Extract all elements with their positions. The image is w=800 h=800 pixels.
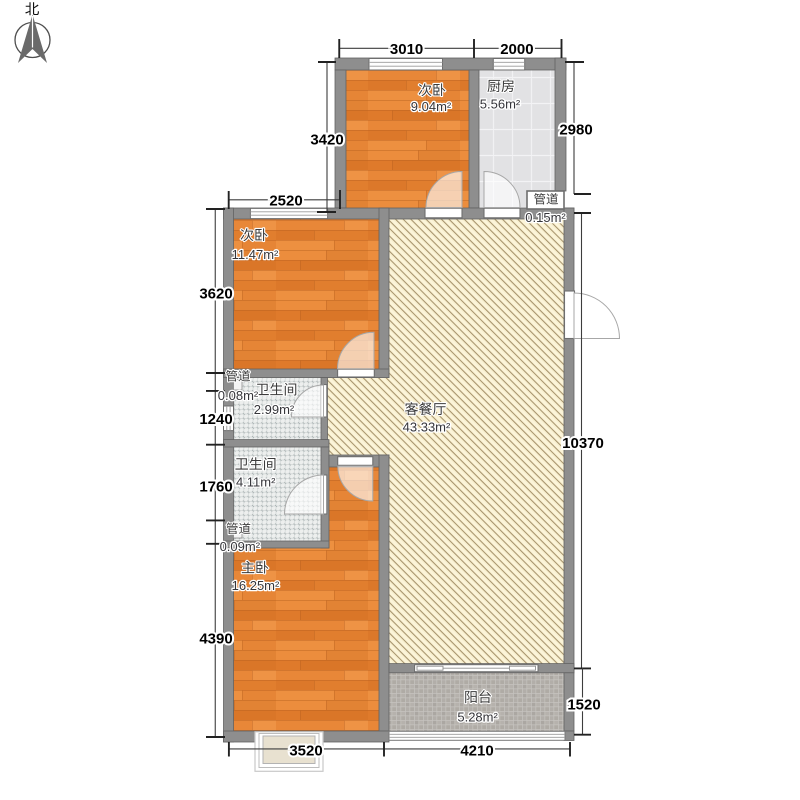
svg-text:2520: 2520: [269, 192, 302, 209]
svg-text:3010: 3010: [390, 41, 423, 58]
svg-text:4210: 4210: [460, 743, 493, 760]
svg-text:1240: 1240: [199, 411, 232, 428]
svg-text:1520: 1520: [567, 696, 600, 713]
svg-text:16.25m²: 16.25m²: [232, 578, 280, 593]
svg-text:0.08m²: 0.08m²: [218, 388, 259, 403]
svg-text:2.99m²: 2.99m²: [254, 402, 295, 417]
svg-text:2000: 2000: [500, 41, 533, 58]
svg-text:5.28m²: 5.28m²: [457, 709, 498, 724]
svg-text:0.15m²: 0.15m²: [525, 210, 566, 225]
svg-text:4390: 4390: [199, 630, 232, 647]
svg-text:11.47m²: 11.47m²: [232, 247, 279, 262]
svg-text:4.11m²: 4.11m²: [236, 475, 276, 490]
svg-text:3520: 3520: [289, 743, 322, 760]
svg-text:3620: 3620: [199, 285, 232, 302]
svg-text:43.33m²: 43.33m²: [403, 420, 451, 435]
svg-text:10370: 10370: [562, 435, 604, 452]
svg-text:3420: 3420: [310, 131, 343, 148]
svg-text:2980: 2980: [559, 121, 592, 138]
svg-text:5.56m²: 5.56m²: [480, 97, 521, 112]
svg-text:9.04m²: 9.04m²: [411, 99, 452, 114]
svg-text:1760: 1760: [199, 478, 232, 495]
svg-text:0.09m²: 0.09m²: [220, 539, 261, 554]
